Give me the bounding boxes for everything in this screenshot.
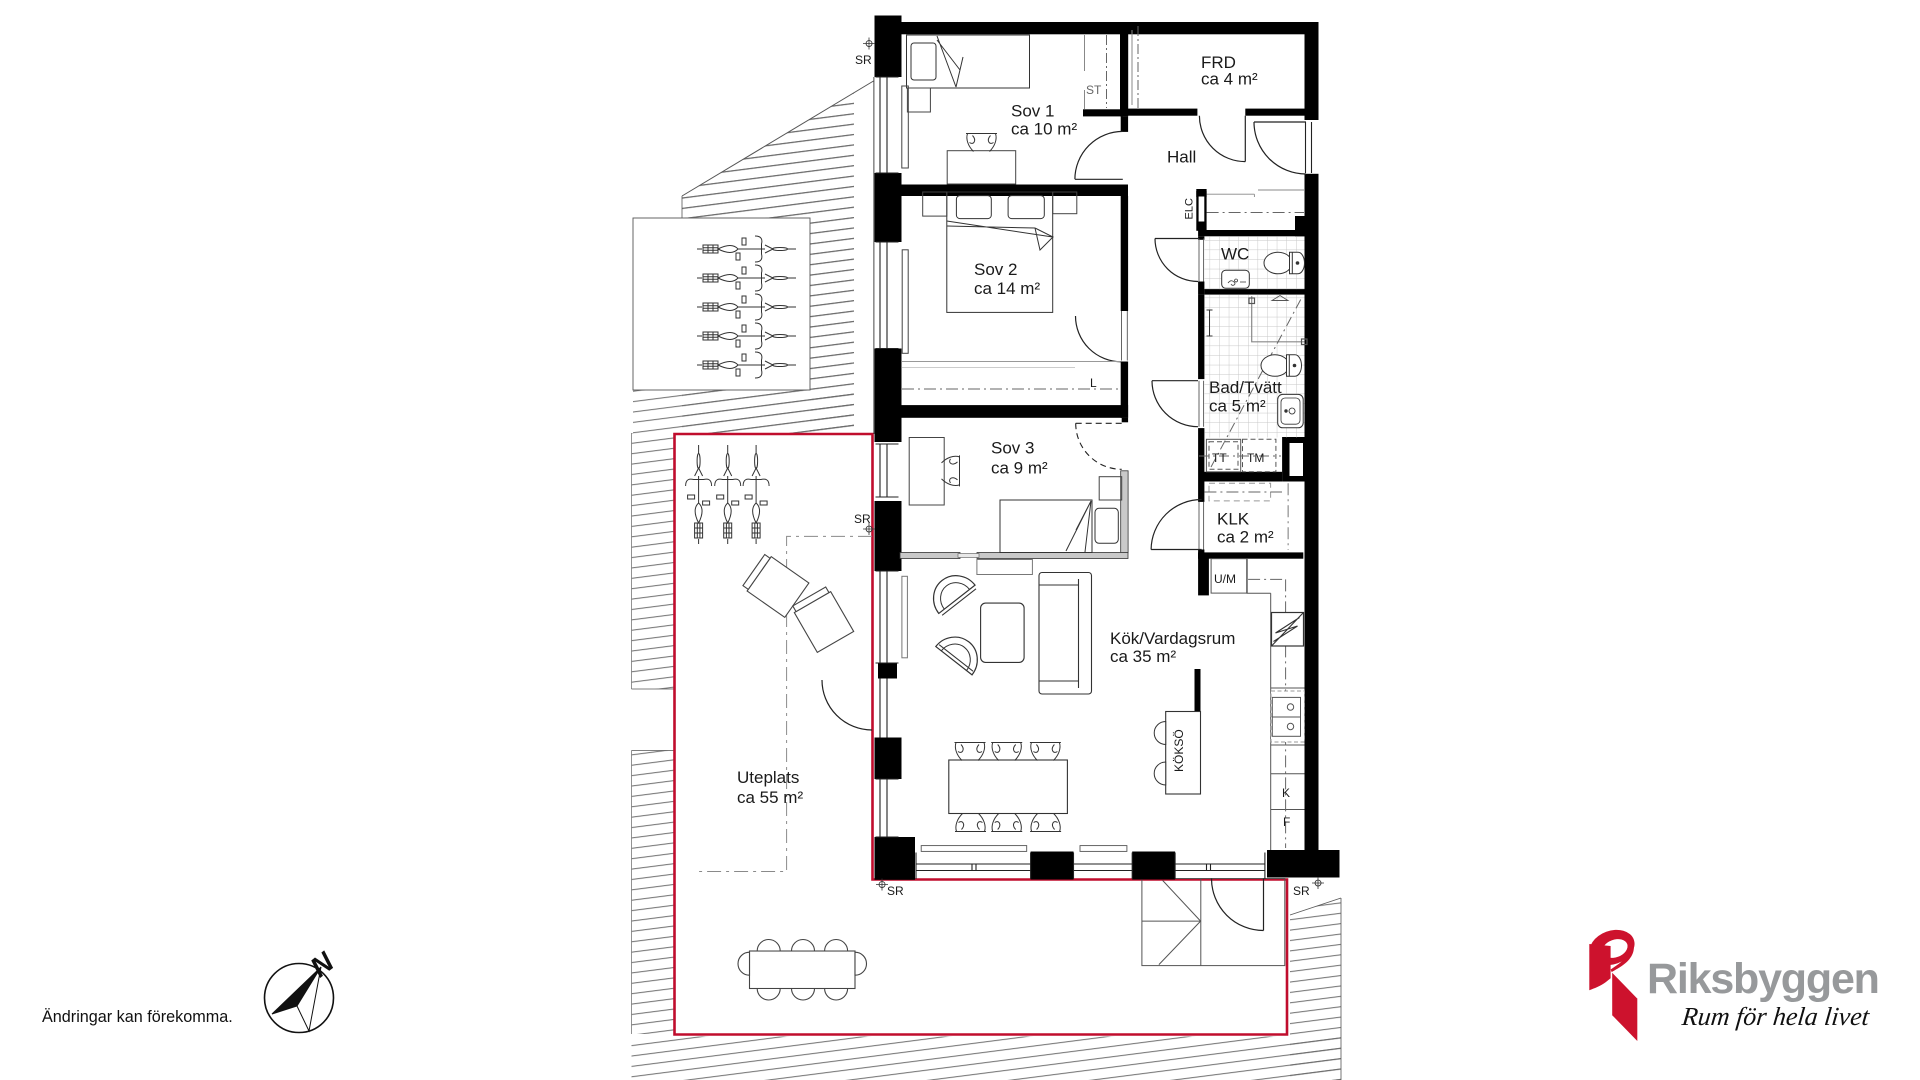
svg-text:L: L bbox=[1090, 376, 1097, 390]
svg-text:ca 10 m²: ca 10 m² bbox=[1011, 120, 1077, 139]
svg-text:SR: SR bbox=[887, 884, 904, 898]
svg-text:Bad/Tvätt: Bad/Tvätt bbox=[1209, 378, 1282, 397]
svg-text:WC: WC bbox=[1221, 245, 1249, 264]
svg-text:ca 5 m²: ca 5 m² bbox=[1209, 397, 1266, 416]
svg-text:Kök/Vardagsrum: Kök/Vardagsrum bbox=[1110, 629, 1235, 648]
svg-text:Rum för hela livet: Rum för hela livet bbox=[1680, 1002, 1872, 1031]
svg-text:ca 4 m²: ca 4 m² bbox=[1201, 70, 1258, 89]
svg-text:Riksbyggen: Riksbyggen bbox=[1647, 955, 1879, 1003]
svg-text:ST: ST bbox=[1086, 83, 1102, 97]
svg-text:Ändringar kan förekomma.: Ändringar kan förekomma. bbox=[42, 1008, 233, 1026]
svg-text:TT: TT bbox=[1212, 451, 1227, 465]
svg-text:Uteplats: Uteplats bbox=[737, 768, 799, 787]
svg-text:F: F bbox=[1283, 815, 1290, 829]
svg-text:ca 14 m²: ca 14 m² bbox=[974, 279, 1040, 298]
svg-text:ELC: ELC bbox=[1184, 198, 1196, 219]
svg-text:Sov 3: Sov 3 bbox=[991, 439, 1034, 458]
svg-text:TM: TM bbox=[1247, 451, 1264, 465]
svg-text:Hall: Hall bbox=[1167, 148, 1196, 167]
svg-text:ca 55 m²: ca 55 m² bbox=[737, 788, 803, 807]
svg-text:SR: SR bbox=[855, 53, 872, 67]
svg-text:ca 2 m²: ca 2 m² bbox=[1217, 528, 1274, 547]
svg-text:Sov 1: Sov 1 bbox=[1011, 102, 1054, 121]
svg-text:ca 9 m²: ca 9 m² bbox=[991, 459, 1048, 478]
svg-text:U/M: U/M bbox=[1214, 572, 1236, 586]
svg-text:SR: SR bbox=[854, 512, 871, 526]
svg-text:K: K bbox=[1282, 786, 1290, 800]
svg-text:ca 35 m²: ca 35 m² bbox=[1110, 647, 1176, 666]
svg-text:KLK: KLK bbox=[1217, 510, 1250, 529]
svg-text:KÖKSÖ: KÖKSÖ bbox=[1172, 729, 1186, 772]
svg-text:Sov 2: Sov 2 bbox=[974, 260, 1017, 279]
svg-text:SR: SR bbox=[1293, 884, 1310, 898]
